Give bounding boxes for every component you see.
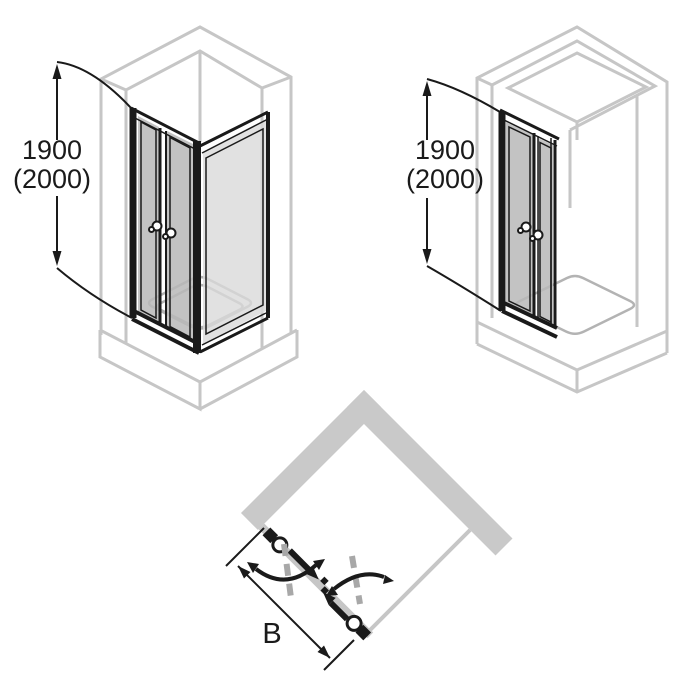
height-dimension-niche: 1900 (2000) [406,79,501,311]
height-label-line1: 1900 [22,135,82,165]
plan-wall-right [347,390,512,555]
figure-plan-view: B [226,390,512,670]
door-handle-right [163,229,176,240]
door-glass-left [506,122,533,318]
diagram-canvas: 1900 (2000) [0,0,700,700]
height-dimension-corner: 1900 (2000) [13,62,132,318]
width-label: B [262,618,281,650]
swing-arrow-right [326,574,394,596]
shower-door-diagram: 1900 (2000) [0,0,700,700]
double-swing-door [500,110,559,337]
double-swing-door [131,108,199,353]
swing-position-right [352,556,360,604]
height-label-line2: (2000) [13,164,91,194]
figure-corner-shower: 1900 (2000) [13,27,297,409]
plan-side-panel-edge [368,530,471,633]
height-label-line1: 1900 [415,135,475,165]
height-label-line2: (2000) [406,164,484,194]
figure-niche-shower: 1900 (2000) [406,27,667,392]
side-panel [200,112,268,352]
